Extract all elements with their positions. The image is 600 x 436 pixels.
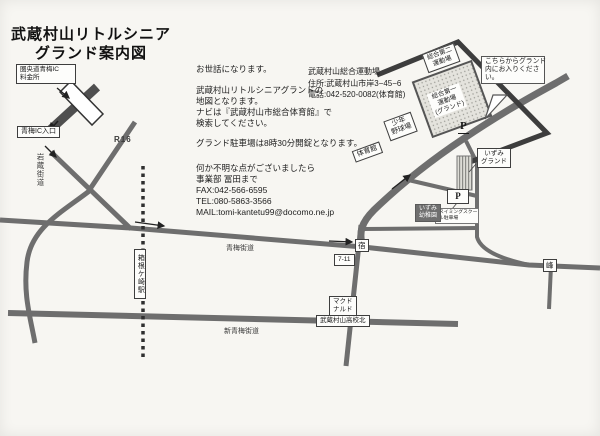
contact-tel: TEL:080-5863-3566: [196, 196, 362, 207]
description-line4: 検索してください。: [196, 118, 362, 129]
venue-name: 武蔵村山総合運動場: [308, 66, 405, 78]
entrance-callout-bubble: こちらからグランド 内にお入りくださ い。: [481, 56, 545, 84]
izumi-kindergarten-label: いずみ 幼稚園: [415, 204, 441, 222]
shuku-crossing-label: 宿: [355, 239, 369, 252]
hakonegasaki-station-label: 箱根ケ崎駅: [134, 249, 146, 299]
swim-parking-label: スイミングスクー ル駐車場: [435, 208, 479, 224]
oume-kaido-label: 青梅街道: [226, 245, 254, 253]
swim-parking-line2: ル駐車場: [439, 216, 475, 222]
title-line1: 武蔵村山リトルシニア: [10, 26, 172, 45]
route16-label: R16: [114, 135, 132, 145]
izumi-ground-line1: いずみ: [481, 150, 507, 158]
kindergarten-road: [363, 228, 477, 229]
izumi-kindergarten-line2: 幼稚園: [419, 213, 437, 220]
mcdonalds-label-line2: ナルド: [333, 306, 353, 314]
page-title: 武蔵村山リトルシニア グランド案内図: [10, 26, 172, 64]
tollgate-label-line1: 圏央道青梅IC: [20, 66, 72, 74]
oume-kaido-route-arrow: [135, 222, 164, 226]
tollgate-label-line2: 料金所: [20, 74, 72, 82]
tollgate-label: 圏央道青梅IC 料金所: [16, 64, 76, 84]
contact-fax: FAX:042-566-6595: [196, 185, 362, 196]
venue-phone: 電話:042-520-0082(体育館): [308, 89, 405, 101]
izumi-ground-label: いずみ グランド: [477, 148, 511, 168]
iwakura-kaido-label: 岩蔵街道: [36, 153, 45, 205]
parking-note: グランド駐車場は8時30分開錠となります。: [196, 138, 362, 149]
title-line2: グランド案内図: [10, 45, 172, 64]
shin-oume-kaido-road: [8, 313, 458, 324]
mine-south-road: [549, 266, 551, 309]
complex-parking-p-mark: P: [458, 120, 469, 134]
venue-info-block: 武蔵村山総合運動場 住所:武蔵村山市岸3−45−6 電話:042-520-008…: [308, 66, 405, 101]
izumi-ground-line2: グランド: [481, 158, 507, 166]
venue-address: 住所:武蔵村山市岸3−45−6: [308, 78, 405, 90]
scanned-guide-map-page: 武蔵村山リトルシニア グランド案内図 お世話になります。 武蔵村山リトルシニアグ…: [0, 0, 600, 436]
mine-crossing-label: 峰: [543, 259, 557, 272]
mcdonalds-label-line1: マクド: [333, 298, 353, 306]
ic-entrance-arrow: [45, 146, 56, 157]
shuku-route-arrow: [329, 241, 352, 242]
bubble-line3: い。: [485, 74, 541, 82]
oume-kaido-road-east: [363, 247, 600, 268]
shin-oume-kaido-label: 新青梅街道: [224, 328, 259, 336]
izumi-ground-area: [457, 156, 472, 190]
bubble-line1: こちらからグランド: [485, 58, 541, 66]
oume-kaido-road-west: [0, 220, 363, 247]
swim-parking-p-mark: P: [447, 189, 469, 204]
seven-eleven-label: 7-11: [334, 254, 355, 266]
highschool-crossing-label: 武蔵村山高校北: [316, 315, 370, 327]
ic-entrance-label: 青梅IC入口: [17, 126, 60, 138]
contact-mail: MAIL:tomi-kantetu99@docomo.ne.jp: [196, 207, 362, 218]
contact-line2: 事業部 冨田まで: [196, 174, 362, 185]
mcdonalds-label: マクド ナルド: [329, 296, 357, 316]
description-line3: ナビは『武蔵村山市総合体育館』で: [196, 107, 362, 118]
contact-line1: 何か不明な点がございましたら: [196, 163, 362, 174]
